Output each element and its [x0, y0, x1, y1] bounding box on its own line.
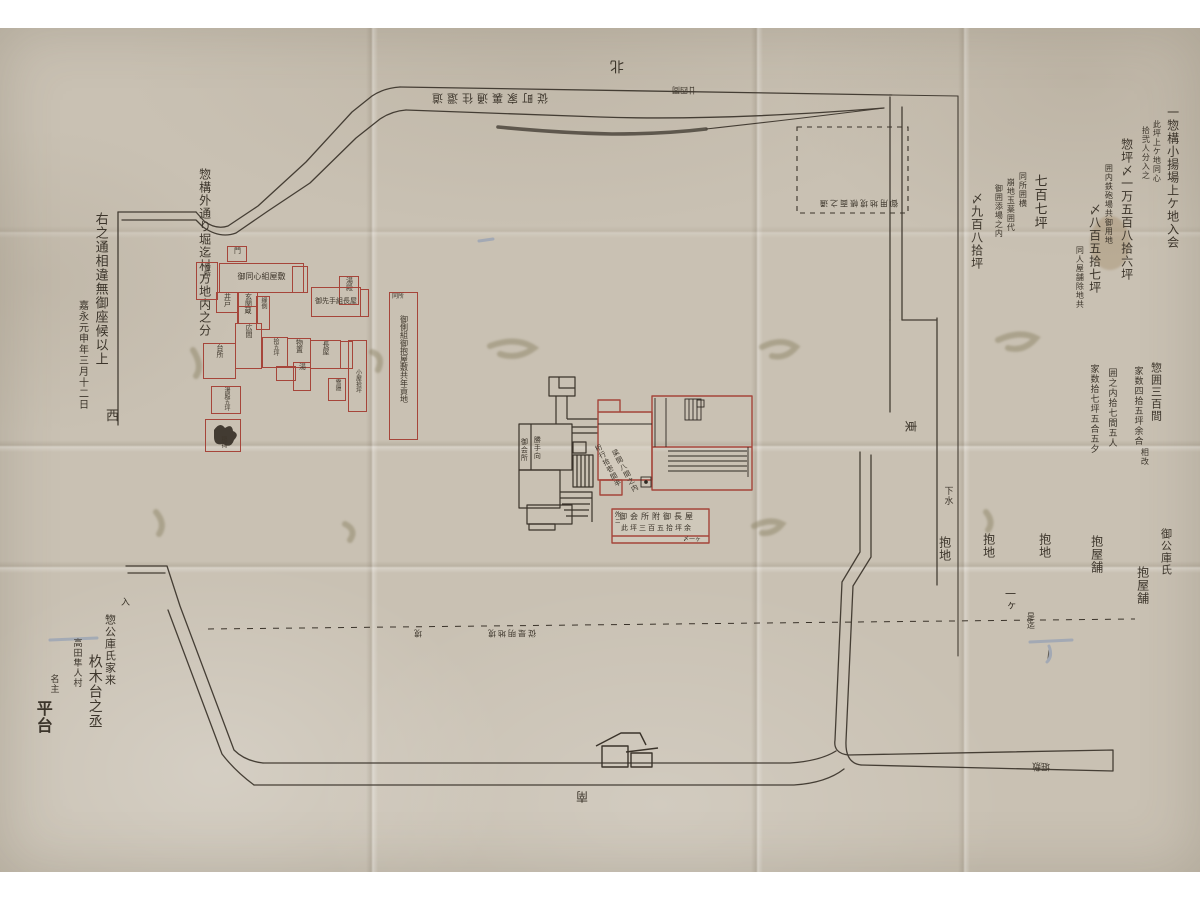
- building-plot-0: 門: [227, 246, 247, 262]
- note-bl-0: 入: [121, 599, 130, 608]
- left-note-closing: 右之通相違無御座候以上: [93, 212, 107, 447]
- note-tr-7: 同所囲横: [1018, 172, 1026, 252]
- building-plot-11: 広間: [235, 323, 262, 369]
- land-label-0: 御公庫氏: [1160, 528, 1172, 576]
- office-label-left: 御会所: [520, 438, 527, 462]
- gate-structure: [596, 733, 658, 767]
- building-plot-1: 番所: [196, 262, 218, 300]
- land-label-5: 一ヶ: [1004, 588, 1016, 612]
- land-label-6: 抱地: [938, 536, 951, 562]
- moat-label: 堀敷: [1032, 760, 1050, 769]
- note-tr-0: 一惣構小揚場上ケ地入会: [1166, 106, 1179, 296]
- south-marker: 南: [576, 790, 588, 803]
- note-mr-3: 家数拾七坪五合五夕: [1088, 364, 1097, 454]
- building-plot-8: 御先手組長屋: [311, 287, 361, 317]
- note-tr-8: 崩地玉薬囲代: [1006, 178, 1014, 268]
- dashed-line-note-right: 是迄: [1026, 612, 1034, 630]
- note-mr-sub: 相改: [1140, 448, 1148, 466]
- tall-plot-top-note: 同所: [392, 294, 404, 300]
- land-label-4: 抱地: [982, 533, 995, 559]
- dashed-line-note: 従是明地境: [486, 628, 536, 636]
- plate-row-2: 此坪三百五拾坪余: [621, 525, 693, 532]
- note-tr-9: 御囲添場之内: [994, 184, 1002, 274]
- land-label-2: 抱屋舗: [1090, 535, 1103, 574]
- north-road-name: 従町家裏通往還道: [428, 92, 548, 104]
- building-plot-3: [292, 266, 308, 293]
- north-marker: 北: [610, 58, 624, 73]
- plate-side-note: 外ニ: [613, 511, 619, 525]
- building-plot-20: 雪隠: [328, 378, 346, 401]
- east-marker: 東: [904, 420, 917, 432]
- building-plot-13: 拾五坪: [262, 337, 288, 368]
- note-bl-5: 平台: [34, 700, 51, 734]
- note-tr-1: 此坪上ケ地同心: [1152, 120, 1160, 230]
- building-plot-12: 台所: [203, 343, 236, 379]
- note-tr-11: 〆九百八拾坪: [970, 192, 983, 292]
- plate-row-1: 御会所附御長屋: [619, 513, 696, 521]
- note-mr-1: 家数四拾五坪余合: [1132, 366, 1141, 451]
- note-tr-3: 惣坪〆一万五百八拾六坪: [1120, 138, 1133, 338]
- central-black-complex: [519, 377, 598, 530]
- building-plot-22-shrine: 稲荷: [205, 419, 241, 452]
- west-marker: 西: [106, 410, 119, 424]
- note-mr-0: 惣囲三百間: [1150, 362, 1162, 457]
- office-label-right: 勝手向: [533, 436, 540, 460]
- left-note-date: 嘉永元申年三月十二日: [76, 300, 87, 440]
- note-mr-2: 囲之内拾七間五人: [1106, 368, 1115, 453]
- building-plot-23-tall: 御側組御抱屋敷共年貢地: [389, 292, 418, 440]
- building-plot-15: 長屋: [310, 340, 341, 369]
- land-label-3: 抱地: [1038, 533, 1051, 559]
- land-label-1: 抱屋舗: [1136, 566, 1149, 605]
- building-plot-19: 湯: [293, 362, 311, 391]
- note-tr-5: 〆八百五拾七坪: [1088, 203, 1101, 343]
- note-bl-4: 名主: [48, 674, 57, 694]
- note-bl-1: 惣公庫氏家来: [104, 614, 116, 734]
- building-plot-21: 湯殿五坪: [211, 386, 241, 414]
- building-plot-10: 蔵: [237, 306, 258, 324]
- drain-label: 下水: [942, 486, 951, 506]
- road-width-note: 廿四間: [672, 85, 696, 93]
- building-plot-4: 井戸: [216, 292, 238, 313]
- note-tr-6: 同人屋舗除地共: [1075, 246, 1083, 346]
- building-plot-17: 小屋拾坪: [348, 340, 367, 412]
- plate-note: 〆一ヶ: [683, 537, 701, 543]
- dashed-line-note-small: 境: [414, 628, 422, 636]
- note-bl-2: 高田隼人村: [71, 638, 80, 728]
- dashed-parcel-note: 御用地境帳面之通: [818, 198, 898, 206]
- note-bl-3: 杦木台之丞: [87, 654, 102, 774]
- note-tr-10: 七百七坪: [1032, 174, 1046, 264]
- building-plot-9: [360, 289, 369, 317]
- note-tr-2: 拾弐人分入之: [1141, 126, 1149, 236]
- note-tr-4: 囲内鉄砲場共御用地: [1104, 164, 1112, 294]
- estate-map-photo: 北 西 東 南 従町家裏通往還道 廿四間 御用地境帳面之通 従是明地境 境 是迄…: [0, 0, 1200, 900]
